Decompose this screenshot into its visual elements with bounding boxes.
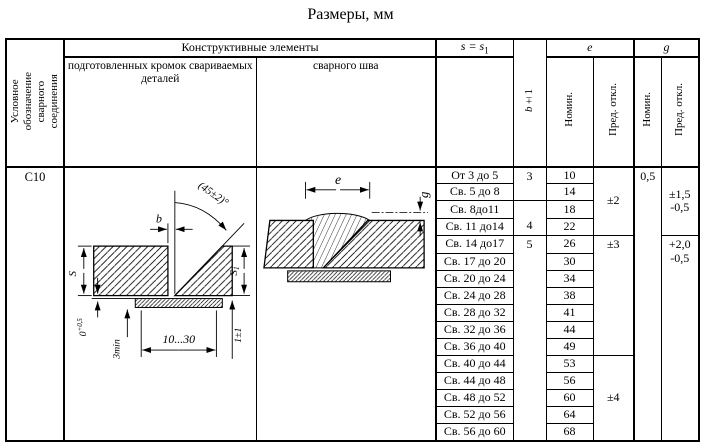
designation-value: С10 <box>6 167 64 441</box>
e-nominal-cell: 34 <box>546 270 593 287</box>
e-nominal-cell: 44 <box>546 321 593 338</box>
header-g-nominal: Номин. <box>634 57 661 167</box>
g-tolerance-cell: ±1,5-0,5 <box>661 167 699 236</box>
b-col-label: b±1 <box>523 89 536 112</box>
s-range-cell: Св. 44 до 48 <box>436 373 513 390</box>
dim-min3-label: 3min <box>112 339 123 360</box>
header-b: b±1 <box>513 39 546 167</box>
e-nominal-cell: 60 <box>546 390 593 407</box>
e-nominal-cell: 53 <box>546 355 593 373</box>
bevel-extension-line <box>223 223 245 246</box>
header-g-deviation: Пред. откл. <box>661 57 699 167</box>
s-range-cell: Св. 5 до 8 <box>436 184 513 201</box>
e-nominal-cell: 30 <box>546 253 593 270</box>
header-e-deviation: Пред. откл. <box>593 57 634 167</box>
dim-b-label: b <box>156 211 162 225</box>
g-tolerance-cell: +2,0-0,5 <box>661 235 699 440</box>
header-e-nominal: Номин. <box>546 57 593 167</box>
e-nominal-cell: 10 <box>546 167 593 184</box>
s-range-cell: Св. 20 до 24 <box>436 270 513 287</box>
dim-zero-label: 0+0,5 <box>77 317 89 336</box>
e-nominal-cell: 64 <box>546 407 593 424</box>
page-title: Размеры, мм <box>0 6 701 24</box>
s-range-cell: От 3 до 5 <box>436 167 513 184</box>
s-range-cell: Св. 8до11 <box>436 201 513 219</box>
b-value-cell: 5 <box>513 235 546 440</box>
backing-strip <box>136 298 223 307</box>
b-value-cell: 3 <box>513 167 546 201</box>
dim-angle-label: (45±2)° <box>196 179 231 209</box>
designation-header-cell: Условное обозначение сварного соединения <box>6 39 64 167</box>
e-nominal-cell: 22 <box>546 218 593 235</box>
e-tolerance-cell: ±4 <box>593 355 634 441</box>
left-plate <box>94 246 168 295</box>
s-range-cell: Св. 24 до 28 <box>436 287 513 304</box>
header-s: s = s1 <box>436 39 513 57</box>
s-range-cell: Св. 56 до 60 <box>436 424 513 441</box>
s-range-cell: Св. 40 до 44 <box>436 355 513 373</box>
s-range-cell: Св. 17 до 20 <box>436 253 513 270</box>
s-range-cell: Св. 28 до 32 <box>436 304 513 321</box>
dim-width-label: 10...30 <box>163 332 196 346</box>
e-nominal-cell: 18 <box>546 201 593 219</box>
seam-diagram: e g <box>258 168 434 440</box>
s-range-cell: Св. 36 до 40 <box>436 338 513 355</box>
edges-diagram-cell: (45±2)° b S S1 0+0,5 3min <box>64 167 256 441</box>
dim-g-label: g <box>417 191 431 198</box>
e-nominal-cell: 41 <box>546 304 593 321</box>
edges-diagram: (45±2)° b S S1 0+0,5 3min <box>66 168 254 440</box>
s-range-cell: Св. 52 до 56 <box>436 407 513 424</box>
e-nominal-cell: 49 <box>546 338 593 355</box>
e-nominal-cell: 38 <box>546 287 593 304</box>
header-prepared-edges: подготовленных кромок свариваемых детале… <box>64 57 256 167</box>
weld-dimensions-table: Условное обозначение сварного соединения… <box>5 38 700 442</box>
g-nominal-cell: 0,5 <box>634 167 661 441</box>
s-range-cell: Св. 32 до 36 <box>436 321 513 338</box>
seam-diagram-cell: e g <box>256 167 436 441</box>
header-g: g <box>634 39 699 57</box>
e-nominal-cell: 26 <box>546 235 593 253</box>
header-constructive: Конструктивные элементы <box>64 39 436 57</box>
designation-header-text: Условное обозначение сварного соединения <box>9 72 61 130</box>
e-nominal-cell: 56 <box>546 373 593 390</box>
b-value-cell: 4 <box>513 201 546 236</box>
s-range-cell: Св. 14 до17 <box>436 235 513 253</box>
right-plate-beveled <box>175 246 232 295</box>
dim-s-label: S <box>67 270 79 276</box>
left-plate <box>264 220 313 267</box>
header-weld-seam: сварного шва <box>256 57 436 167</box>
dim-e-label: e <box>335 172 341 187</box>
backing-strip <box>287 271 390 282</box>
e-nominal-cell: 68 <box>546 424 593 441</box>
e-tolerance-cell: ±3 <box>593 235 634 355</box>
header-e: e <box>546 39 634 57</box>
e-tolerance-cell: ±2 <box>593 167 634 236</box>
dim-one-label: 1±1 <box>233 327 244 342</box>
angle-arc <box>175 202 226 230</box>
s-col-spacer <box>436 57 513 167</box>
e-nominal-cell: 14 <box>546 184 593 201</box>
s-range-cell: Св. 48 до 52 <box>436 390 513 407</box>
s-range-cell: Св. 11 до14 <box>436 218 513 235</box>
